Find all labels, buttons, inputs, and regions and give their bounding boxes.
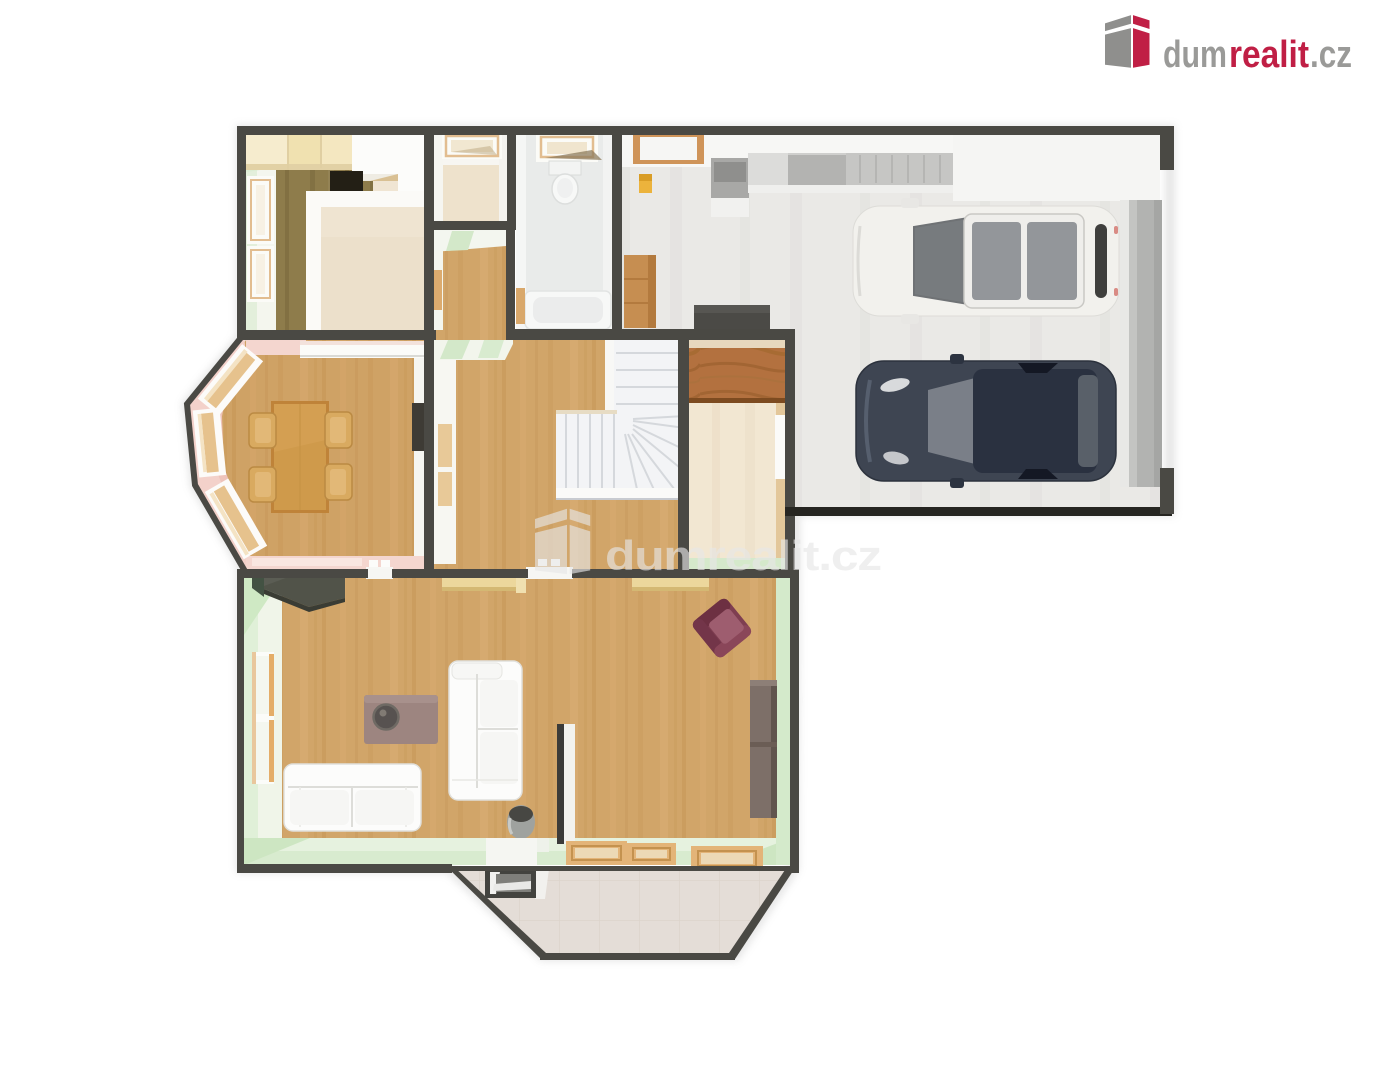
svg-text:realit: realit <box>1229 34 1309 76</box>
svg-text:.cz: .cz <box>1310 34 1352 76</box>
svg-text:dum: dum <box>1163 34 1227 76</box>
svg-text:dumrealit.cz: dumrealit.cz <box>605 532 881 579</box>
